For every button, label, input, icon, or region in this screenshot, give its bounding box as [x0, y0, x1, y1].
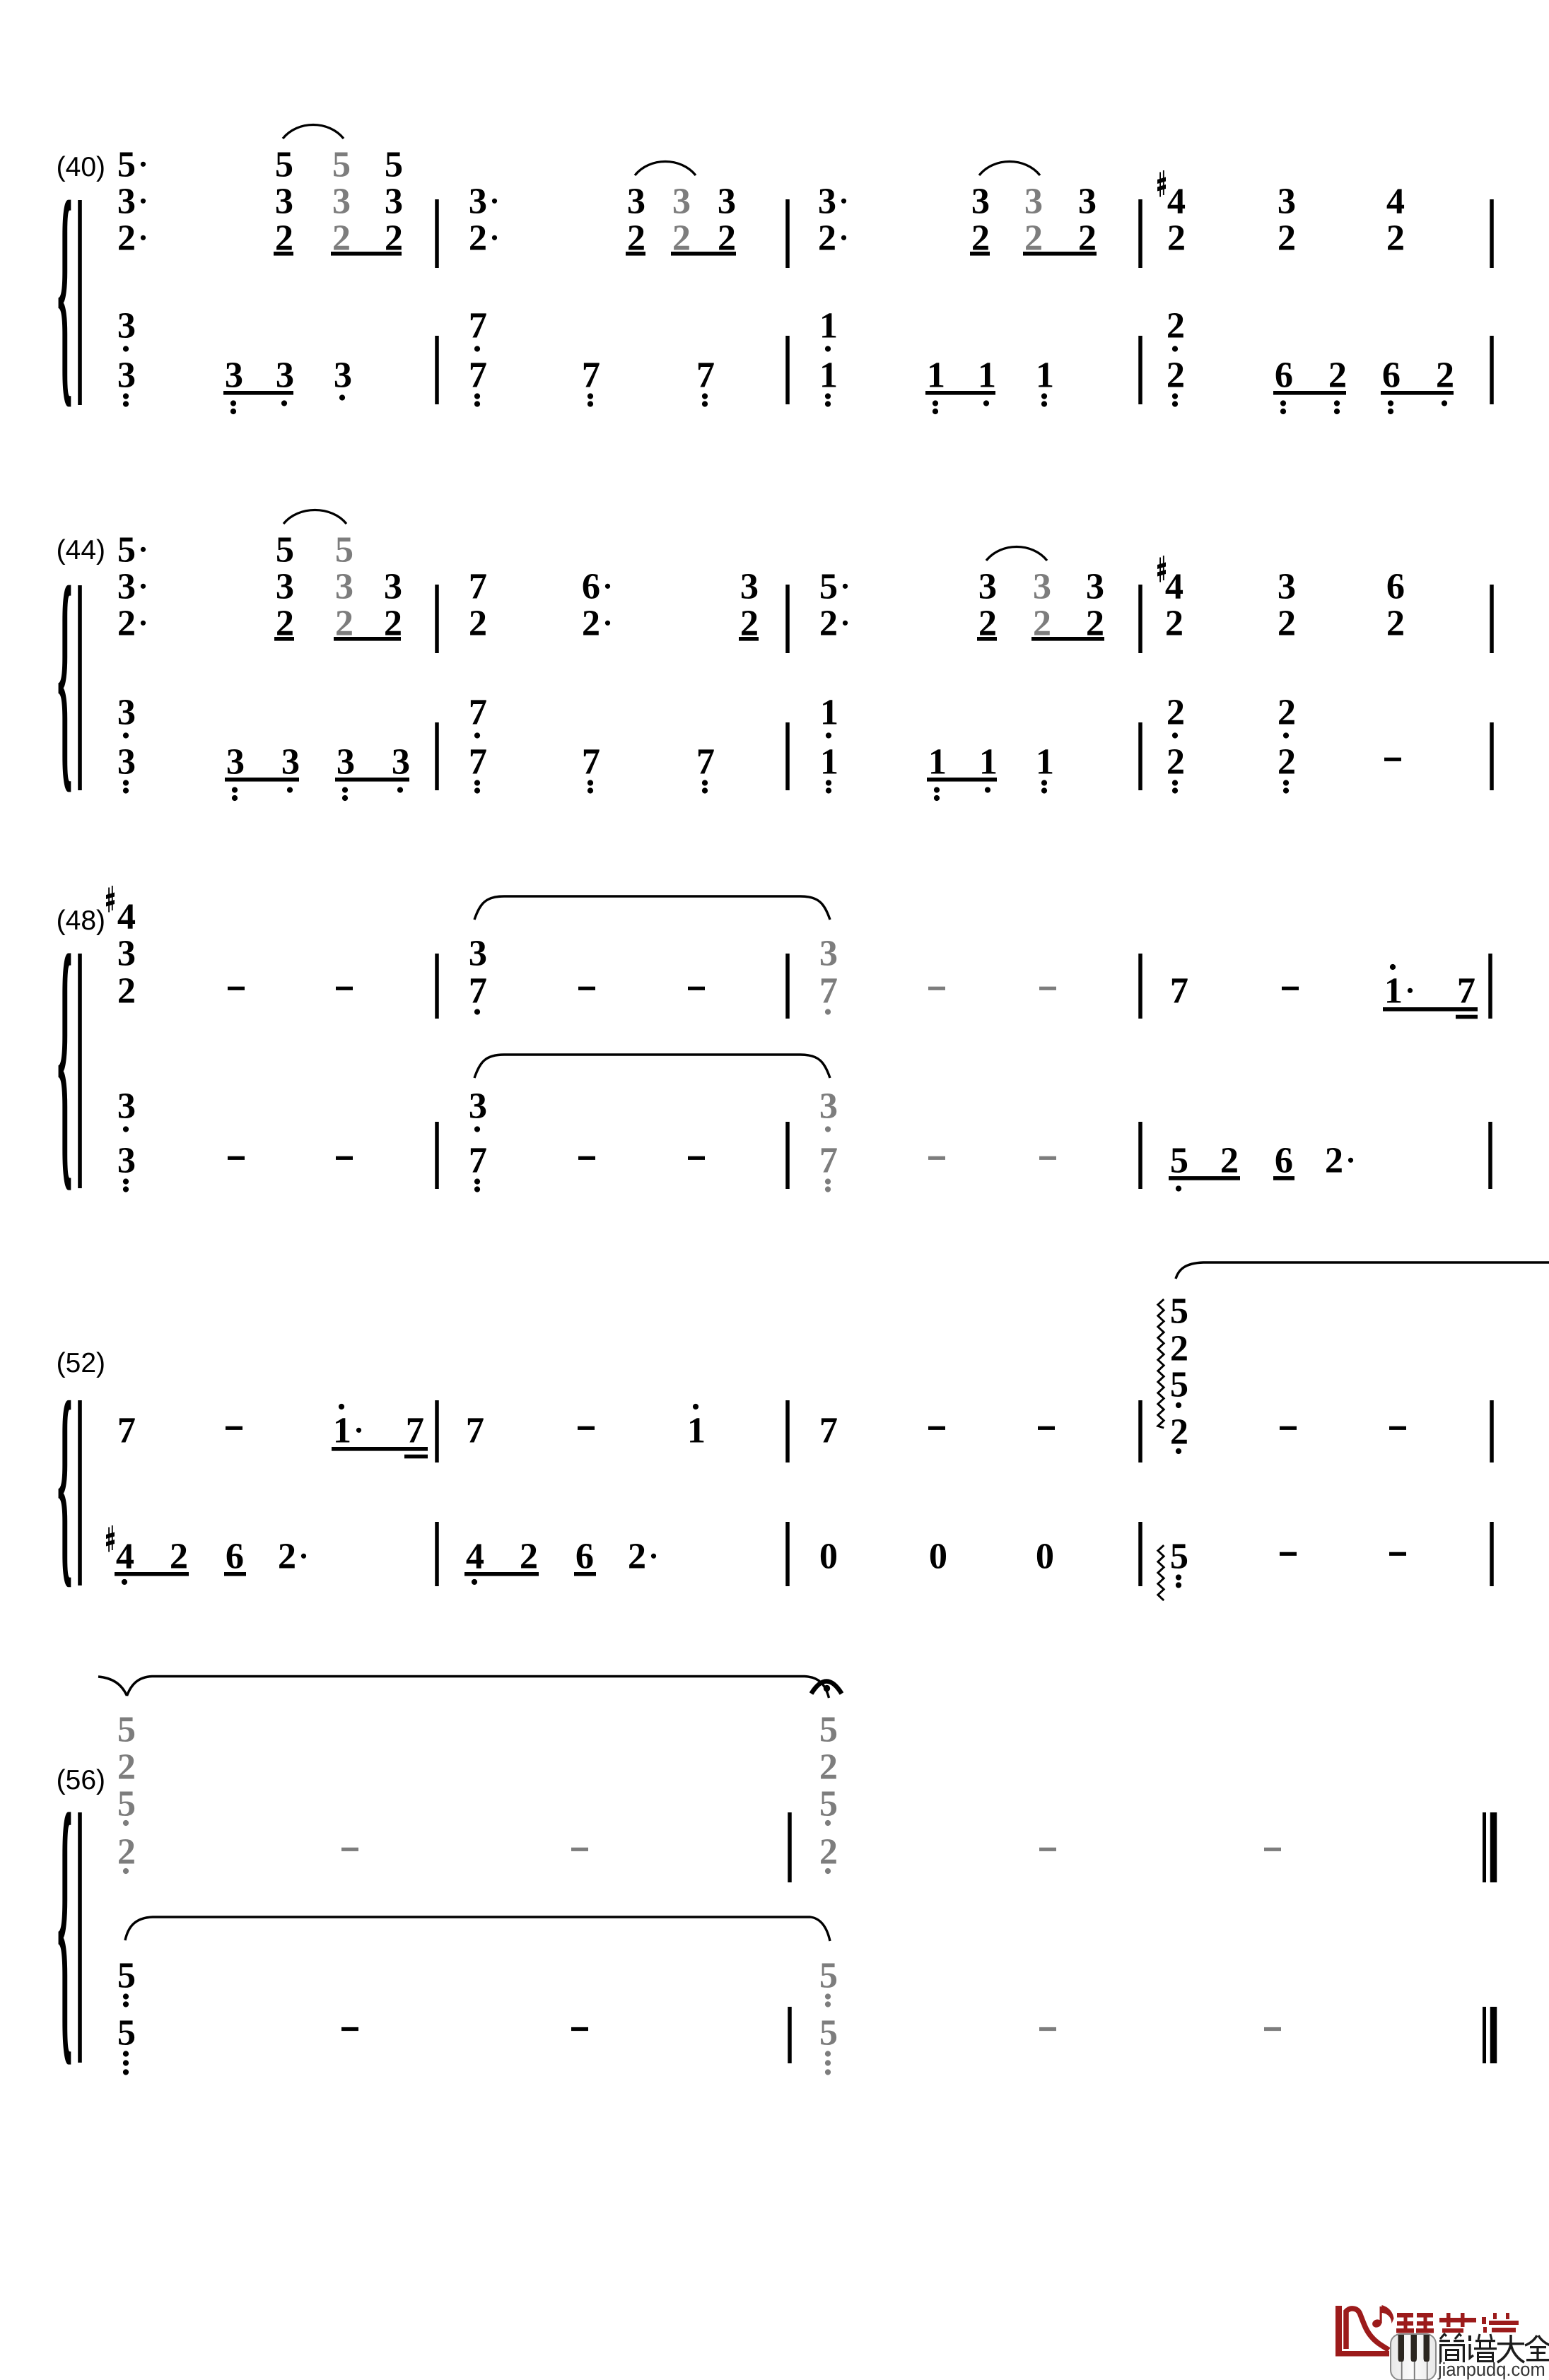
- svg-text:3: 3: [819, 1085, 838, 1126]
- svg-text:2: 2: [582, 602, 600, 643]
- svg-text:3: 3: [1278, 180, 1296, 221]
- svg-text:3: 3: [819, 932, 838, 973]
- svg-text:7: 7: [582, 741, 600, 782]
- svg-text:7: 7: [469, 741, 487, 782]
- svg-text:{: {: [57, 1356, 73, 1606]
- svg-text:0: 0: [1036, 1535, 1054, 1576]
- svg-text:3: 3: [818, 180, 836, 221]
- svg-text:3: 3: [117, 1085, 136, 1126]
- svg-text:2: 2: [520, 1535, 538, 1576]
- svg-text:7: 7: [469, 305, 487, 346]
- svg-text:7: 7: [469, 354, 487, 395]
- svg-text:1: 1: [927, 354, 945, 395]
- svg-text:3: 3: [332, 180, 351, 221]
- svg-text:2: 2: [1386, 602, 1405, 643]
- svg-text:2: 2: [1167, 305, 1185, 346]
- svg-text:2: 2: [1170, 1411, 1188, 1452]
- svg-text:5: 5: [819, 1954, 838, 1995]
- svg-text:5: 5: [1170, 1139, 1188, 1180]
- svg-text:2: 2: [1165, 602, 1183, 643]
- svg-text:5: 5: [335, 529, 353, 570]
- svg-text:3: 3: [225, 354, 243, 395]
- svg-text:6: 6: [1382, 354, 1401, 395]
- svg-text:1: 1: [820, 691, 838, 732]
- svg-text:{: {: [57, 898, 73, 1214]
- svg-text:1: 1: [819, 354, 838, 395]
- svg-text:1: 1: [333, 1409, 351, 1450]
- svg-text:6: 6: [1275, 1139, 1293, 1180]
- svg-text:2: 2: [170, 1535, 188, 1576]
- svg-text:1: 1: [687, 1409, 706, 1450]
- svg-text:7: 7: [1170, 970, 1188, 1011]
- svg-text:6: 6: [226, 1535, 244, 1576]
- svg-text:1: 1: [978, 354, 996, 395]
- svg-text:7: 7: [469, 1139, 487, 1180]
- svg-text:0: 0: [819, 1535, 838, 1576]
- svg-text:3: 3: [1086, 565, 1104, 606]
- svg-text:2: 2: [819, 602, 838, 643]
- svg-text:2: 2: [117, 1746, 136, 1787]
- svg-text:3: 3: [978, 565, 997, 606]
- svg-text:3: 3: [117, 565, 136, 606]
- svg-text:2: 2: [819, 1746, 838, 1787]
- svg-text:2: 2: [117, 970, 136, 1011]
- svg-text:3: 3: [392, 741, 410, 782]
- svg-text:2: 2: [117, 217, 136, 258]
- svg-text:3: 3: [718, 180, 736, 221]
- svg-text:{: {: [57, 150, 73, 428]
- svg-text:3: 3: [117, 691, 136, 732]
- svg-text:3: 3: [117, 180, 136, 221]
- svg-text:1: 1: [1036, 354, 1054, 395]
- svg-text:3: 3: [117, 741, 136, 782]
- svg-text:3: 3: [469, 180, 487, 221]
- svg-text:4: 4: [466, 1535, 484, 1576]
- svg-text:3: 3: [1278, 565, 1296, 606]
- svg-text:5: 5: [332, 143, 351, 184]
- svg-text:3: 3: [385, 180, 403, 221]
- svg-text:2: 2: [117, 602, 136, 643]
- svg-text:5: 5: [276, 529, 294, 570]
- svg-text:7: 7: [582, 354, 600, 395]
- svg-text:7: 7: [406, 1409, 424, 1450]
- svg-text:7: 7: [469, 565, 487, 606]
- svg-text:7: 7: [469, 970, 487, 1011]
- svg-text:2: 2: [818, 217, 836, 258]
- svg-text:3: 3: [740, 565, 759, 606]
- svg-text:2: 2: [1220, 1139, 1239, 1180]
- svg-text:4: 4: [116, 1535, 134, 1576]
- svg-text:5: 5: [1170, 1290, 1188, 1331]
- svg-text:4: 4: [1167, 180, 1186, 221]
- svg-text:5: 5: [117, 143, 136, 184]
- svg-text:3: 3: [627, 180, 645, 221]
- svg-text:3: 3: [276, 565, 294, 606]
- svg-text:3: 3: [469, 1085, 487, 1126]
- svg-text:7: 7: [819, 1409, 838, 1450]
- svg-text:2: 2: [1436, 354, 1454, 395]
- svg-text:3: 3: [275, 180, 293, 221]
- svg-text:0: 0: [929, 1535, 947, 1576]
- svg-text:1: 1: [928, 741, 947, 782]
- svg-text:4: 4: [1386, 180, 1405, 221]
- svg-text:3: 3: [281, 741, 300, 782]
- svg-text:7: 7: [696, 354, 715, 395]
- svg-text:7: 7: [466, 1409, 484, 1450]
- svg-text:2: 2: [819, 1831, 838, 1872]
- svg-text:3: 3: [384, 565, 402, 606]
- svg-text:5: 5: [385, 143, 403, 184]
- svg-text:7: 7: [1457, 970, 1475, 1011]
- svg-text:3: 3: [1033, 565, 1051, 606]
- svg-text:2: 2: [469, 602, 487, 643]
- svg-text:5: 5: [819, 1783, 838, 1824]
- svg-text:1: 1: [820, 741, 838, 782]
- svg-text:3: 3: [335, 565, 353, 606]
- svg-text:3: 3: [117, 932, 136, 973]
- svg-text:2: 2: [469, 217, 487, 258]
- svg-text:2: 2: [1167, 741, 1185, 782]
- svg-text:3: 3: [1078, 180, 1097, 221]
- svg-text:6: 6: [1275, 354, 1293, 395]
- svg-text:1: 1: [1036, 741, 1054, 782]
- svg-text:2: 2: [1278, 602, 1296, 643]
- svg-text:7: 7: [819, 1139, 838, 1180]
- svg-text:2: 2: [1328, 354, 1347, 395]
- svg-text:3: 3: [276, 354, 294, 395]
- svg-text:3: 3: [672, 180, 691, 221]
- svg-text:7: 7: [469, 691, 487, 732]
- svg-text:3: 3: [469, 932, 487, 973]
- svg-text:5: 5: [117, 1783, 136, 1824]
- svg-text:{: {: [57, 535, 73, 813]
- svg-text:jianpudq.com: jianpudq.com: [1437, 2360, 1545, 2380]
- svg-text:3: 3: [117, 354, 136, 395]
- svg-text:2: 2: [1325, 1139, 1343, 1180]
- svg-text:6: 6: [582, 565, 600, 606]
- svg-text:5: 5: [819, 1708, 838, 1749]
- svg-text:2: 2: [1278, 217, 1296, 258]
- svg-text:2: 2: [628, 1535, 646, 1576]
- svg-text:5: 5: [117, 2012, 136, 2053]
- svg-text:5: 5: [275, 143, 293, 184]
- svg-text:5: 5: [117, 1708, 136, 1749]
- svg-text:5: 5: [1170, 1535, 1188, 1576]
- svg-text:7: 7: [696, 741, 715, 782]
- svg-text:{: {: [57, 1752, 73, 2090]
- svg-text:2: 2: [1167, 217, 1186, 258]
- svg-text:5: 5: [117, 1954, 136, 1995]
- svg-text:6: 6: [1386, 565, 1405, 606]
- svg-text:3: 3: [971, 180, 990, 221]
- svg-text:2: 2: [1167, 354, 1185, 395]
- svg-text:1: 1: [979, 741, 998, 782]
- svg-text:2: 2: [1386, 217, 1405, 258]
- svg-text:7: 7: [117, 1409, 136, 1450]
- svg-text:2: 2: [1170, 1327, 1188, 1368]
- svg-text:5: 5: [819, 2012, 838, 2053]
- svg-text:5: 5: [819, 565, 838, 606]
- svg-text:2: 2: [1167, 691, 1185, 732]
- svg-text:6: 6: [575, 1535, 594, 1576]
- svg-text:5: 5: [1170, 1364, 1188, 1405]
- svg-text:2: 2: [278, 1535, 296, 1576]
- svg-text:2: 2: [1278, 691, 1296, 732]
- svg-text:4: 4: [117, 896, 136, 937]
- svg-text:5: 5: [117, 529, 136, 570]
- svg-text:3: 3: [117, 1139, 136, 1180]
- svg-text:3: 3: [226, 741, 245, 782]
- svg-text:3: 3: [1024, 180, 1043, 221]
- svg-text:1: 1: [1384, 970, 1403, 1011]
- svg-text:3: 3: [117, 305, 136, 346]
- svg-text:4: 4: [1165, 565, 1183, 606]
- svg-text:3: 3: [334, 354, 352, 395]
- svg-text:3: 3: [337, 741, 355, 782]
- svg-text:1: 1: [819, 305, 838, 346]
- svg-text:2: 2: [117, 1831, 136, 1872]
- svg-text:2: 2: [1278, 741, 1296, 782]
- svg-text:7: 7: [819, 970, 838, 1011]
